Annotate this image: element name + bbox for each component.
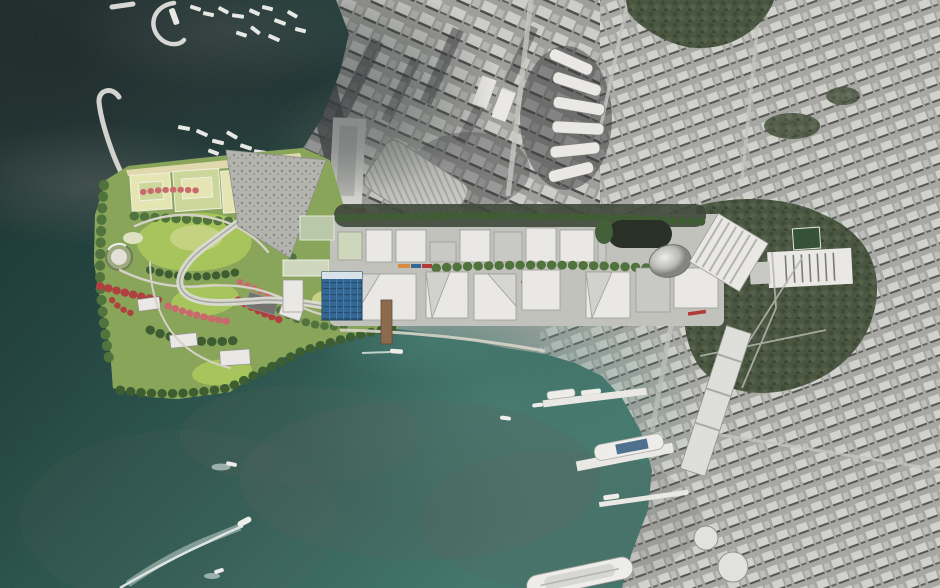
aerial-masterplan-svg	[0, 0, 940, 588]
aerial-photomontage-view	[0, 0, 940, 588]
grain-overlay	[0, 0, 940, 588]
